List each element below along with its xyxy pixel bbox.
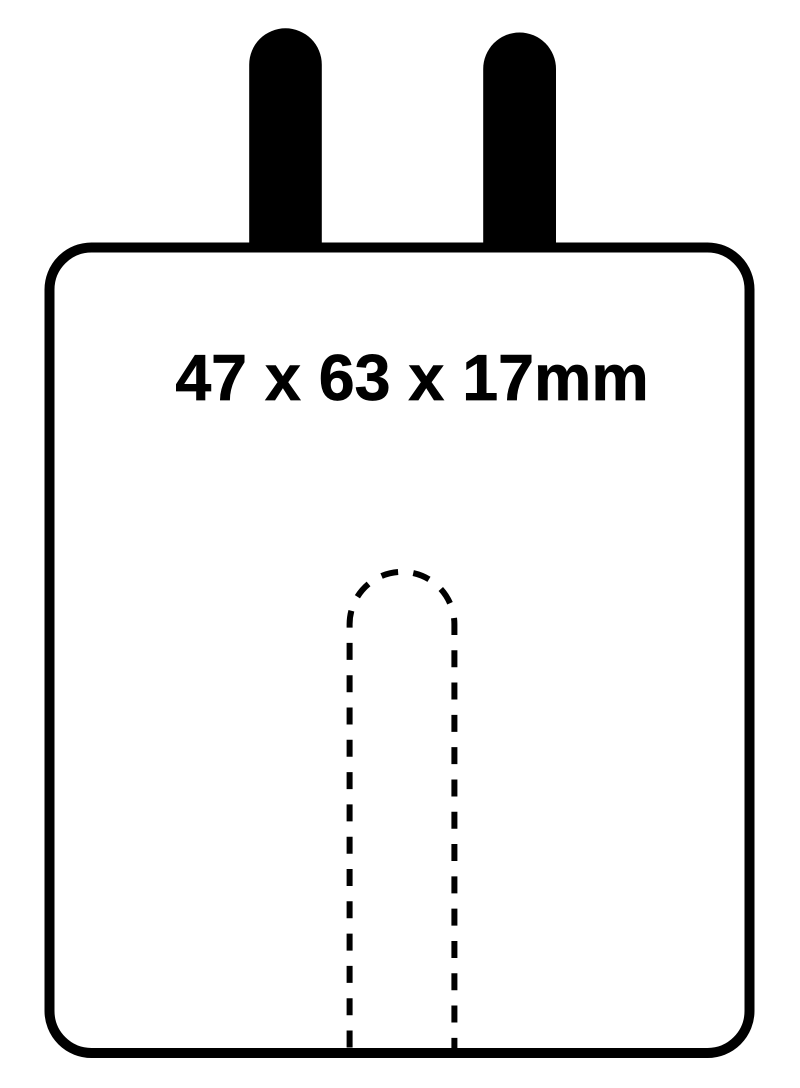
svg-text:47 x 63 x 17mm: 47 x 63 x 17mm — [175, 342, 648, 414]
